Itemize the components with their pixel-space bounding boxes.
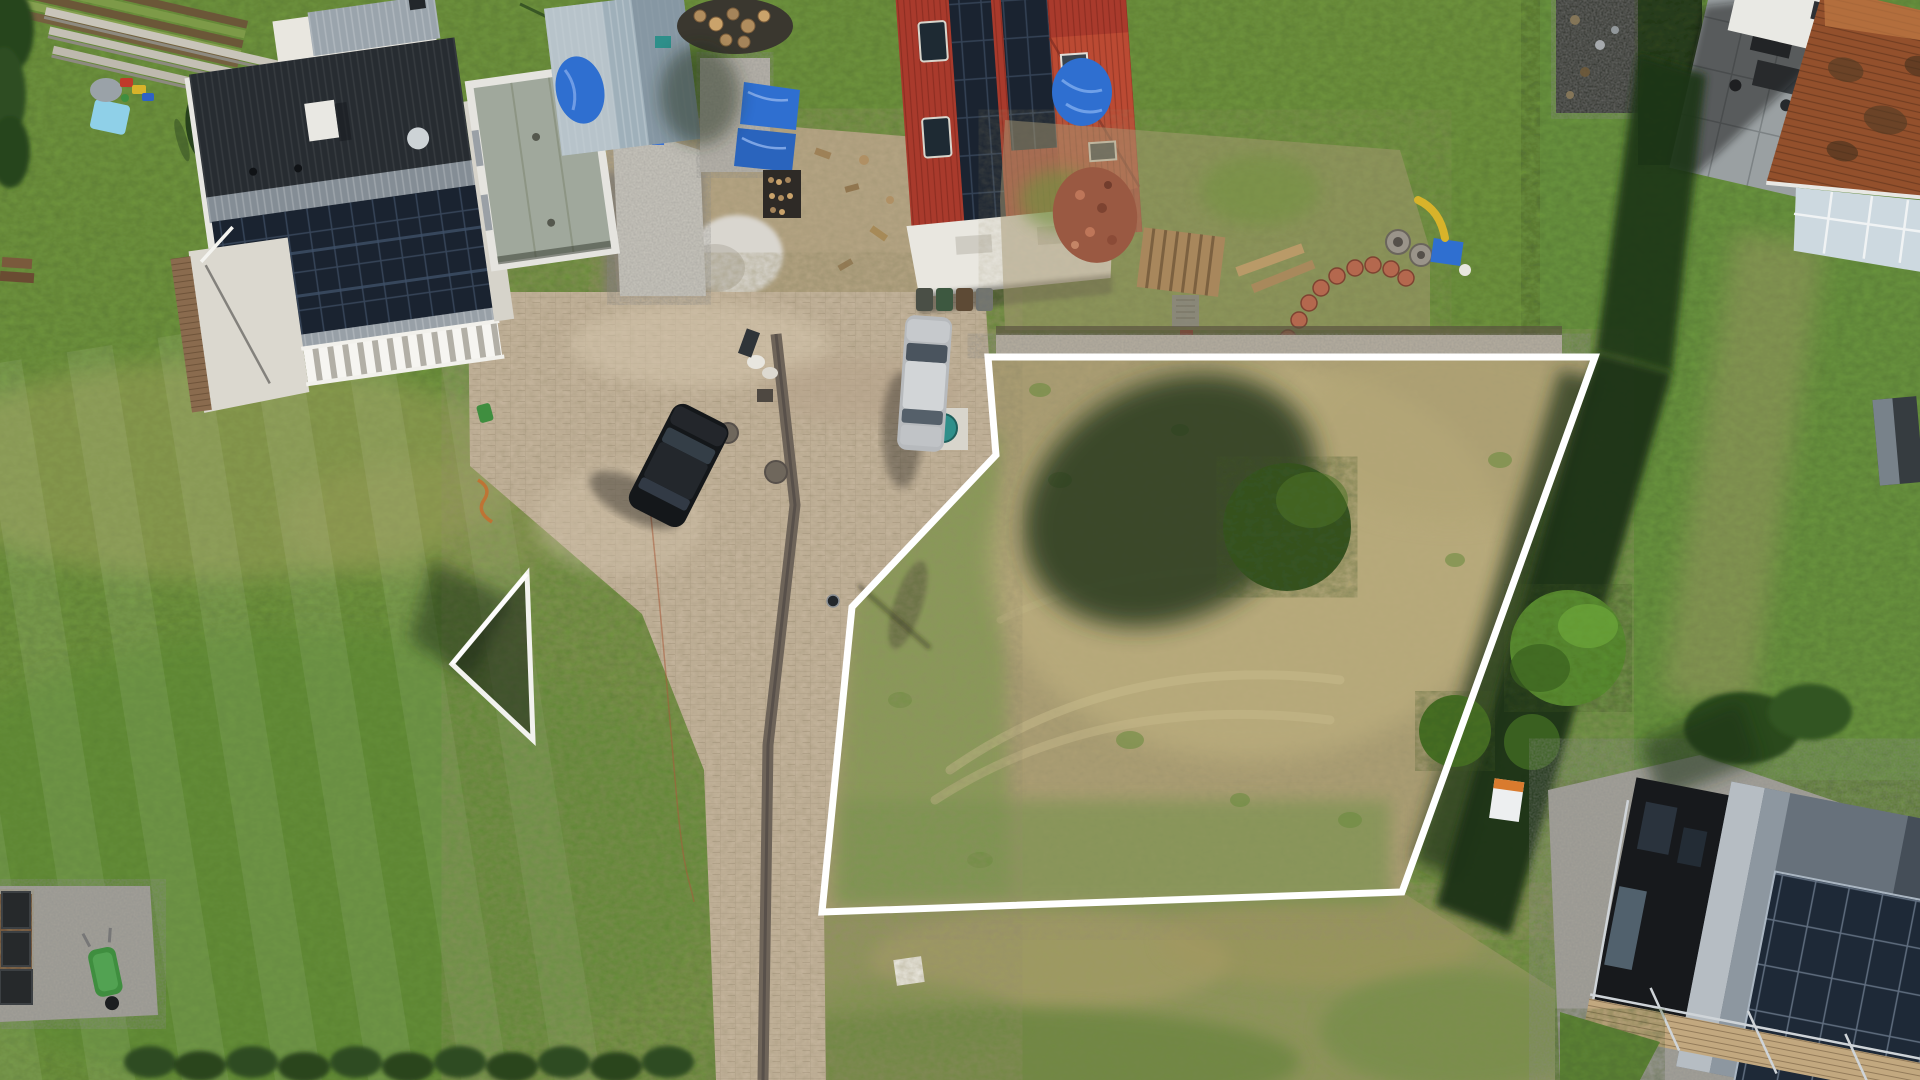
porta-cabin xyxy=(1489,778,1524,822)
car-rear-window xyxy=(901,408,943,425)
car-hood xyxy=(906,319,950,344)
bush-small xyxy=(1504,714,1560,770)
new-build-house xyxy=(1579,763,1920,1080)
silver-car xyxy=(896,314,952,452)
street-lamp xyxy=(827,595,839,607)
manhole-cover-2 xyxy=(765,461,787,483)
round-tree xyxy=(1223,463,1351,591)
bush-medium xyxy=(1419,695,1491,767)
drain-grate xyxy=(757,389,773,402)
firewood-rack xyxy=(763,170,801,218)
white-bag xyxy=(1459,264,1471,276)
aerial-photo-canvas xyxy=(0,0,1920,1080)
car-roof xyxy=(902,361,946,412)
teal-box xyxy=(655,36,671,48)
garden-shed-small xyxy=(1872,396,1920,486)
aerial-photo xyxy=(0,0,1920,1080)
gable-window xyxy=(955,234,992,254)
small-blue-tarp xyxy=(1430,238,1463,266)
compost-bins xyxy=(0,892,32,1004)
chimney xyxy=(304,100,339,142)
white-sign xyxy=(893,956,924,986)
tree-shadow xyxy=(660,45,740,145)
car-windshield xyxy=(906,343,948,364)
car-trunk xyxy=(900,424,942,447)
wood-pallet xyxy=(1137,227,1226,297)
trench-line xyxy=(996,326,1562,335)
plot-green-bottom xyxy=(840,800,1390,905)
